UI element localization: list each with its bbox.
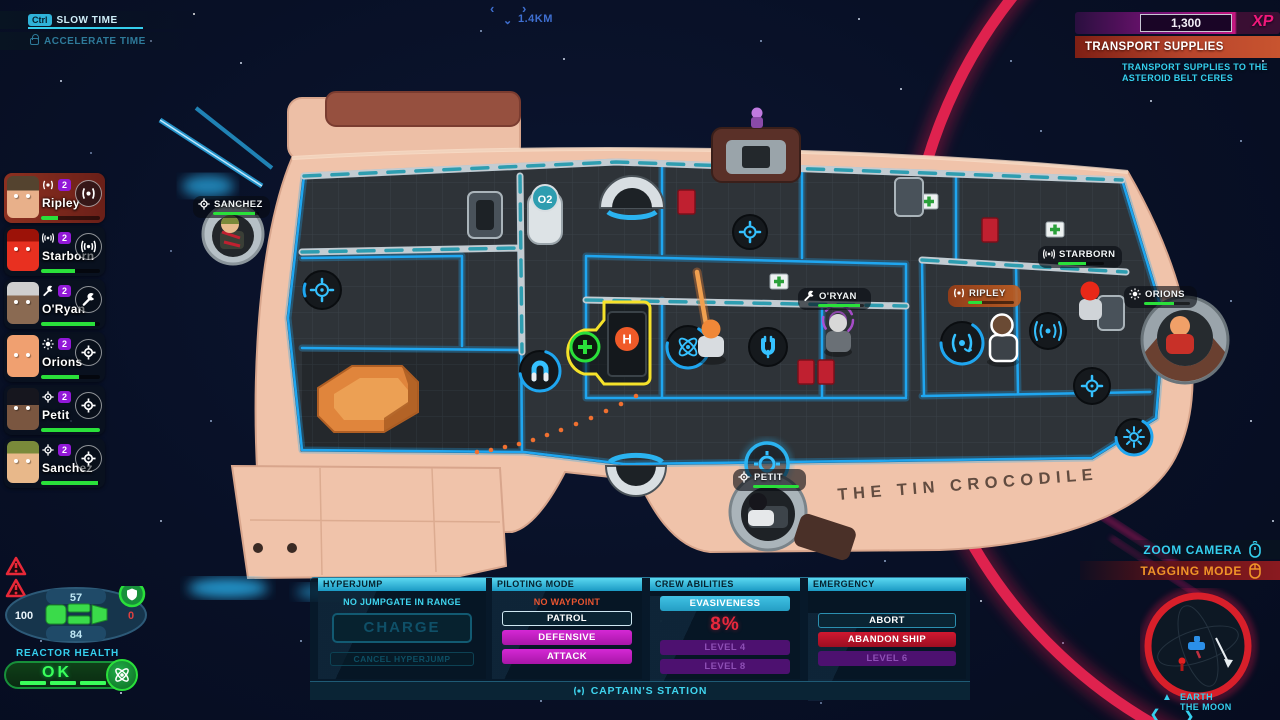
hull-bottom-value: 84 [70,629,83,641]
sun-icon [42,338,54,350]
zoom-camera-label: ZOOM CAMERA [1143,543,1242,557]
ship-label-sanchez[interactable]: SANCHEZ [193,196,270,218]
ship-label-name: STARBORN [1059,249,1115,260]
mission-subtitle-line2: ASTEROID BELT CERES [1122,73,1280,84]
crosshair-icon [42,444,54,456]
mouse-scroll-icon [1248,541,1262,558]
charge-button[interactable]: CHARGE [332,613,472,643]
chevron-left-icon[interactable]: ‹ [490,1,494,16]
evasiveness-button[interactable]: EVASIVENESS [660,596,790,611]
count-badge: 2 [58,444,71,456]
crew-card-petit[interactable]: 2 Petit [4,385,105,435]
reactor-health-bar: OK [4,661,136,689]
hull-top-value: 57 [70,592,82,604]
captain-icon [953,287,965,299]
emergency-header: EMERGENCY [808,578,966,591]
health-bar [41,481,100,485]
hyperjump-header: HYPERJUMP [318,578,486,591]
crew-name: Ripley [42,196,80,210]
nav-label-line1: EARTH [1180,692,1232,702]
crew-card-sanchez[interactable]: 2 Sanchez [4,438,105,488]
captains-station-panel: HYPERJUMP NO JUMPGATE IN RANGE CHARGE CA… [310,577,970,700]
wrench-icon [81,292,96,307]
waypoint-status: NO WAYPOINT [492,591,642,607]
zoom-camera-control[interactable]: ZOOM CAMERA [1080,540,1280,559]
avatar [7,388,39,430]
crosshair-icon [81,451,96,466]
right-turret[interactable] [1142,297,1228,383]
accelerate-time-control[interactable]: ACCELERATE TIME [0,32,215,50]
crosshair-icon [738,471,750,483]
crew-card-orions[interactable]: 2 Orions [4,332,105,382]
tagging-mode-label: TAGGING MODE [1140,564,1242,578]
evasiveness-value: 8% [650,611,800,636]
ship-label-ripley[interactable]: RIPLEY [948,285,1021,307]
avatar [7,335,39,377]
hyperjump-section: HYPERJUMP NO JUMPGATE IN RANGE CHARGE CA… [318,578,486,679]
ship-label-name: RIPLEY [969,288,1006,299]
crew-abilities-header: CREW ABILITIES [650,578,800,591]
radio-icon [81,239,96,254]
count-badge: 2 [58,285,71,297]
emergency-section: EMERGENCY ABORT ABANDON SHIP LEVEL 6 [808,578,966,679]
xp-bar: 1,300 XP [1075,12,1280,34]
avatar [7,441,39,483]
mission-subtitle-line1: TRANSPORT SUPPLIES TO THE [1122,62,1280,73]
mission-title: TRANSPORT SUPPLIES [1075,36,1280,58]
crew-card-ripley[interactable]: 2 Ripley [4,173,105,223]
role-badge [75,392,102,419]
ship-label-starborn[interactable]: STARBORN [1038,246,1122,268]
nav-right-icon[interactable]: ❯ [1184,709,1194,720]
role-badge [75,233,102,260]
count-badge: 2 [58,179,71,191]
cancel-hyperjump-button[interactable]: CANCEL HYPERJUMP [330,652,474,666]
minimap[interactable] [1140,588,1260,708]
crosshair-icon [198,198,210,210]
ship-label-name: ORIONS [1145,289,1185,300]
ship-label-orions[interactable]: ORIONS [1124,286,1197,308]
role-badge [75,445,102,472]
crosshair-icon [81,345,96,360]
crosshair-icon [81,398,96,413]
warning-icon [5,556,27,576]
nav-up-icon[interactable]: ▲ [1162,692,1172,703]
crew-card-starborn[interactable]: 2 Starborn [4,226,105,276]
hull-left-value: 100 [15,610,33,622]
wrench-icon [42,285,54,297]
lock-icon [30,38,39,45]
health-bar [41,322,100,326]
svg-text:O2: O2 [538,194,553,206]
level-8-button[interactable]: LEVEL 8 [660,659,790,674]
distance-value: 1.4KM [518,13,553,25]
reactor-atom-icon [106,659,138,691]
radio-icon [1043,248,1055,260]
ship-label-petit[interactable]: PETIT [733,469,806,491]
health-bar [41,269,100,273]
mission-subtitle: TRANSPORT SUPPLIES TO THE ASTEROID BELT … [1122,62,1280,83]
slow-time-underline [28,27,143,29]
game-screen: THE TIN CROCODILE [0,0,1280,720]
wrench-icon [803,290,815,302]
nav-left-icon[interactable]: ❮ [1150,707,1160,720]
ship-status-gauge: 57 100 0 84 [2,586,154,646]
health-bar [41,216,100,220]
avatar [7,229,39,271]
crew-name: Petit [42,408,70,422]
defensive-button[interactable]: DEFENSIVE [502,630,632,645]
slow-time-label: SLOW TIME [57,15,118,26]
hyperjump-status: NO JUMPGATE IN RANGE [318,591,486,607]
o2-tank[interactable]: O2 [528,185,562,244]
ship-label-name: O'RYAN [819,291,857,302]
captain-icon [42,179,54,191]
ship-label-oryan[interactable]: O'RYAN [798,288,871,310]
role-badge [75,339,102,366]
ship-deck [288,162,1164,464]
ship-label-name: PETIT [754,472,783,483]
ship-label-name: SANCHEZ [214,199,263,210]
level-6-button[interactable]: LEVEL 6 [818,651,956,666]
medbay-icon: H [615,327,639,351]
abandon-ship-button[interactable]: ABANDON SHIP [818,632,956,647]
crosshair-icon [42,391,54,403]
avatar [7,176,39,218]
chevron-down-icon: ⌄ [503,14,512,27]
piloting-section: PILOTING MODE NO WAYPOINT PATROL DEFENSI… [492,578,642,679]
level-4-button[interactable]: LEVEL 4 [660,640,790,655]
role-badge [75,286,102,313]
heal-station-icon [571,333,599,361]
reactor-status: OK [6,664,108,682]
xp-value: 1,300 [1140,14,1232,32]
xp-label: XP [1250,13,1274,31]
health-bar [41,428,100,432]
engine-beams [160,108,272,197]
health-bar [41,375,100,379]
count-badge: 2 [58,232,71,244]
ctrl-key-badge: Ctrl [28,14,52,26]
piloting-header: PILOTING MODE [492,578,642,591]
avatar [7,282,39,324]
captain-icon [81,186,96,201]
station-footer-label: CAPTAIN'S STATION [591,685,707,697]
top-turret[interactable] [712,108,800,183]
accelerate-time-label: ACCELERATE TIME [44,36,146,47]
mouse-icon [1248,562,1262,579]
hull-right-value: 0 [128,610,134,622]
sun-icon [1129,288,1141,300]
captain-icon [573,685,585,697]
tagging-mode-control[interactable]: TAGGING MODE [1080,561,1280,580]
svg-text:H: H [622,332,631,347]
attack-button[interactable]: ATTACK [502,649,632,664]
count-badge: 2 [58,391,71,403]
patrol-button[interactable]: PATROL [502,611,632,626]
station-footer: CAPTAIN'S STATION [310,681,970,700]
role-badge [75,180,102,207]
crew-abilities-section: CREW ABILITIES EVASIVENESS 8% LEVEL 4 LE… [650,578,800,679]
radio-icon [42,232,54,244]
crew-card-oryan[interactable]: 2 O'Ryan [4,279,105,329]
reactor-health-label: REACTOR HEALTH [16,648,119,659]
shield-status-icon [120,586,144,606]
count-badge: 2 [58,338,71,350]
abort-button[interactable]: ABORT [818,613,956,628]
